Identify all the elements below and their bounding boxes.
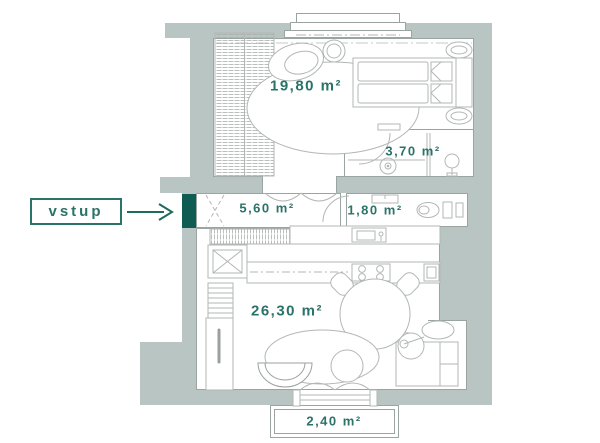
area-label-living: 26,30 m² xyxy=(251,303,323,320)
entrance-door xyxy=(182,194,196,228)
area-label-bathroom: 3,70 m² xyxy=(385,144,440,159)
area-label-balcony: 2,40 m² xyxy=(306,414,361,429)
area-label-wc: 1,80 m² xyxy=(347,203,402,218)
floor-plan: vstup 19,80 m² 3,70 m² 5,60 m² 1,80 m² 2… xyxy=(0,0,600,443)
entrance-arrow-icon xyxy=(0,0,600,443)
area-label-bedroom: 19,80 m² xyxy=(270,78,342,95)
area-label-hallway: 5,60 m² xyxy=(239,201,294,216)
